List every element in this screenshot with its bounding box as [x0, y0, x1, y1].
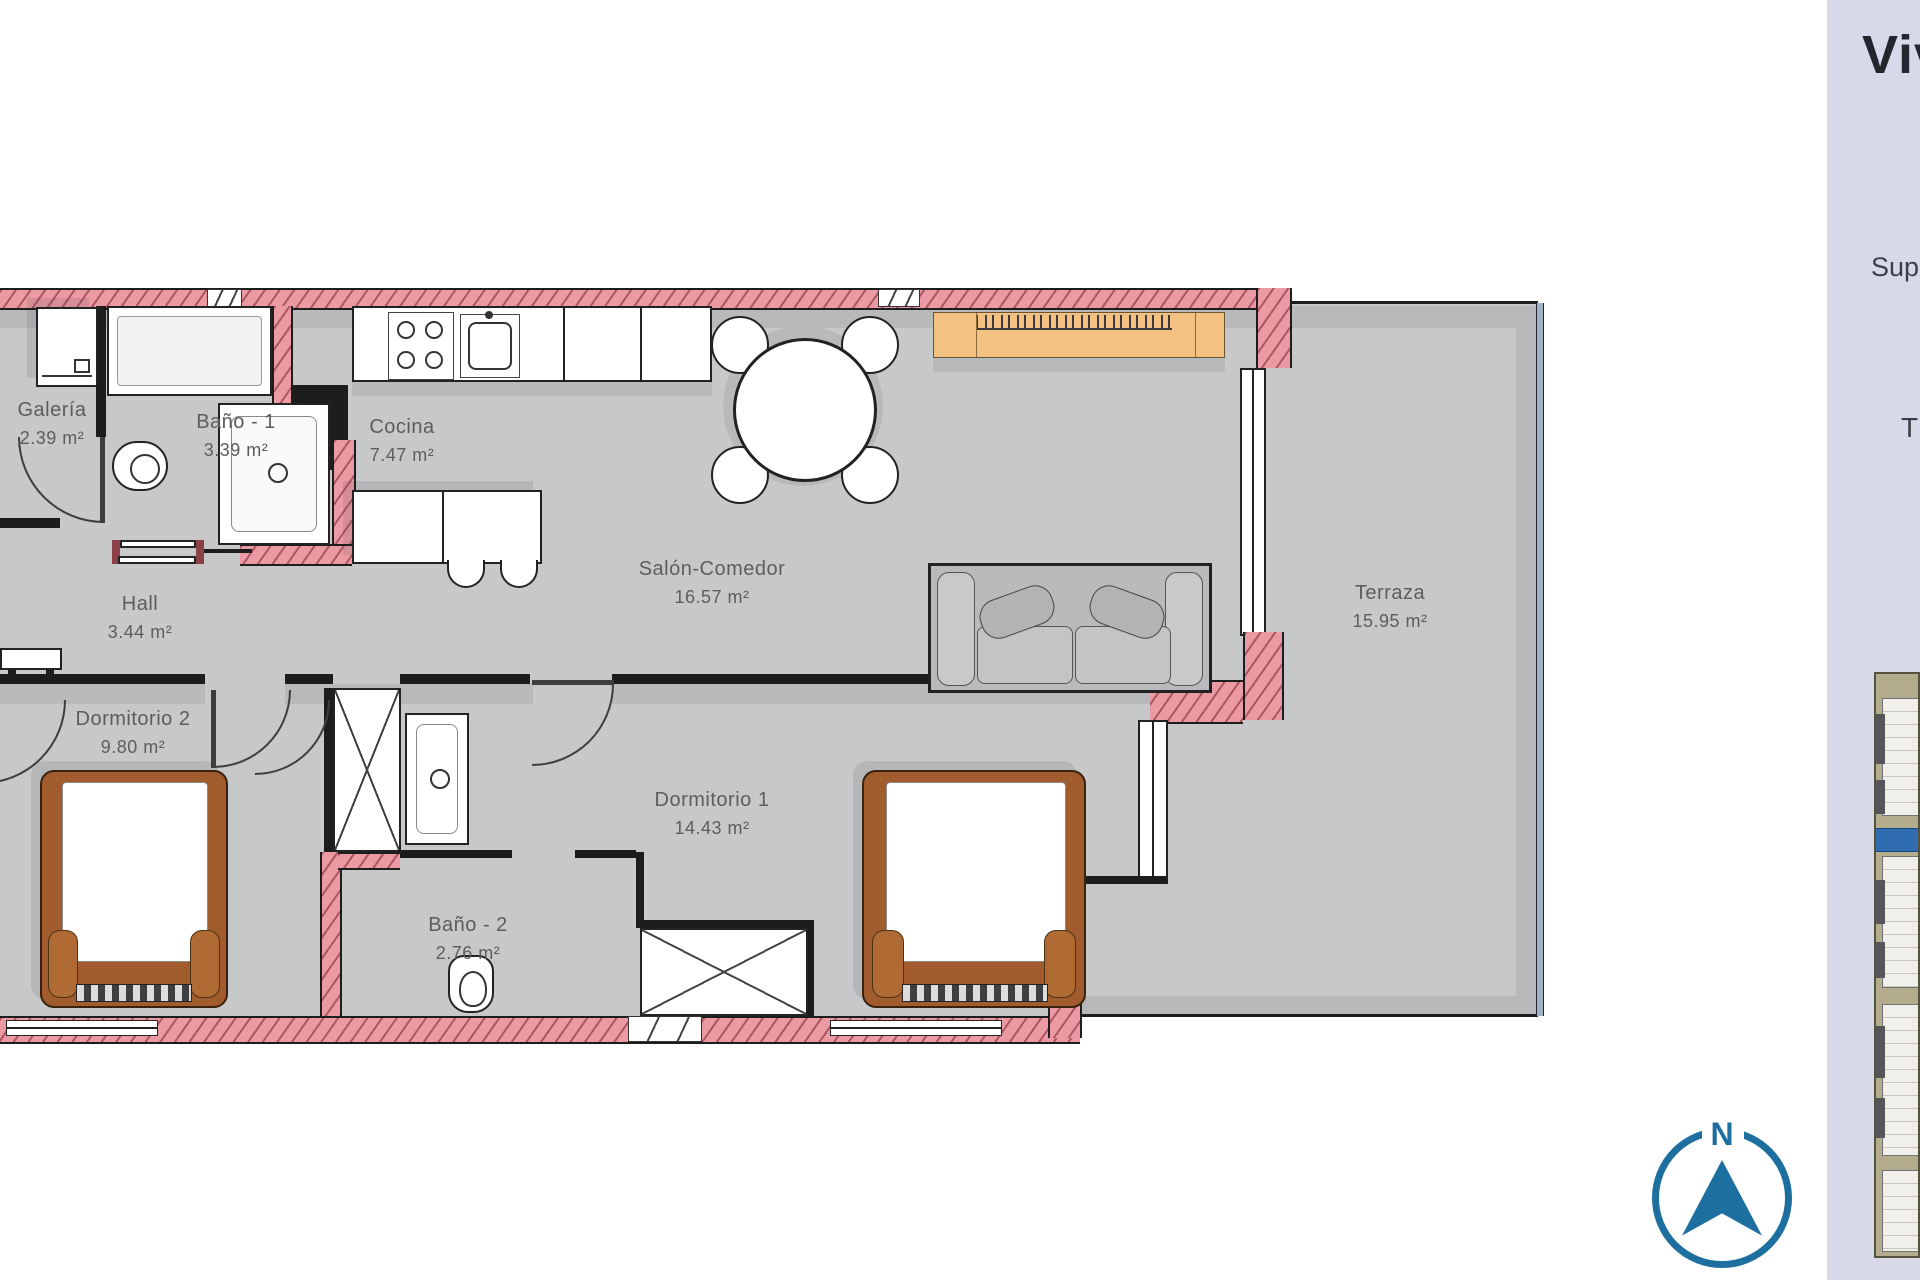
- furniture-shadow: [933, 358, 1225, 372]
- map-highlight: [1876, 828, 1920, 852]
- shower: [640, 928, 808, 1016]
- room-label-salon: Salón-Comedor16.57 m²: [639, 558, 786, 608]
- sliding-door-track: [204, 549, 252, 553]
- compass-north-label: N: [1652, 1116, 1792, 1153]
- wall-shadow: [1516, 328, 1538, 1016]
- wardrobe: [333, 688, 401, 852]
- shower-tray: [107, 306, 272, 396]
- compass: N: [1652, 1128, 1792, 1268]
- bed: [862, 770, 1086, 1008]
- wall: [0, 674, 205, 684]
- wall: [320, 852, 342, 1016]
- door-leaf: [532, 680, 614, 685]
- radiator: [902, 984, 1048, 1002]
- sofa: [928, 563, 1212, 693]
- bed: [40, 770, 228, 1008]
- washbasin: [405, 713, 469, 845]
- wall: [400, 674, 530, 684]
- room-label-bano1: Baño - 13.39 m²: [196, 411, 276, 461]
- terrace-edge: [1080, 1014, 1538, 1017]
- panel-terraza-text: T: [1901, 412, 1918, 444]
- panel-superficie-text: Sup: [1871, 252, 1919, 283]
- wall: [272, 306, 293, 403]
- radiator: [76, 984, 192, 1002]
- wall: [1256, 288, 1292, 368]
- terrace-edge: [1285, 301, 1538, 304]
- washing-machine: [36, 307, 98, 387]
- island-counter: [352, 490, 542, 564]
- toilet: [112, 441, 168, 491]
- furniture-shadow: [352, 380, 712, 396]
- wall: [285, 674, 333, 684]
- sliding-door: [118, 556, 196, 564]
- room-label-cocina: Cocina7.47 m²: [369, 416, 434, 466]
- door-leaf: [211, 690, 216, 768]
- wall: [0, 518, 60, 528]
- terrace-railing: [1536, 303, 1544, 1016]
- wall: [1243, 632, 1284, 720]
- wall-vent: [878, 289, 920, 307]
- sliding-door: [120, 540, 196, 548]
- room-label-terraza: Terraza15.95 m²: [1352, 582, 1427, 632]
- door-leaf: [100, 437, 105, 523]
- wall: [575, 850, 636, 858]
- kitchen-sink: [460, 314, 520, 378]
- sliding-door-end: [196, 540, 204, 564]
- wall-vent: [207, 289, 242, 307]
- side-info-panel: Viv Sup T: [1827, 0, 1920, 1280]
- wall: [636, 920, 814, 928]
- floor-plan-page: Galería2.39 m² Baño - 13.39 m² Cocina7.4…: [0, 0, 1920, 1280]
- bench-leg: [8, 670, 16, 676]
- window: [830, 1020, 1002, 1036]
- room-label-dormitorio2: Dormitorio 29.80 m²: [76, 708, 191, 758]
- kitchen-counter: [352, 306, 712, 382]
- sideboard-radiator: [933, 312, 1225, 358]
- wall-vent: [628, 1016, 702, 1042]
- wall: [636, 852, 644, 928]
- mini-site-map: [1874, 672, 1920, 1258]
- stove: [388, 312, 454, 380]
- wall: [338, 852, 400, 870]
- window: [1240, 368, 1266, 636]
- panel-title: Viv: [1862, 24, 1920, 86]
- room-label-hall: Hall3.44 m²: [108, 593, 173, 643]
- room-label-bano2: Baño - 22.76 m²: [428, 914, 508, 964]
- window: [6, 1020, 158, 1036]
- window: [1138, 720, 1168, 884]
- room-label-galeria: Galería2.39 m²: [17, 399, 86, 449]
- wall: [240, 544, 352, 566]
- room-label-dormitorio1: Dormitorio 114.43 m²: [655, 789, 770, 839]
- hall-bench: [0, 648, 62, 670]
- wall-shadow: [1080, 996, 1516, 1016]
- dining-table: [733, 338, 877, 482]
- bench-leg: [46, 670, 54, 676]
- wall: [400, 850, 512, 858]
